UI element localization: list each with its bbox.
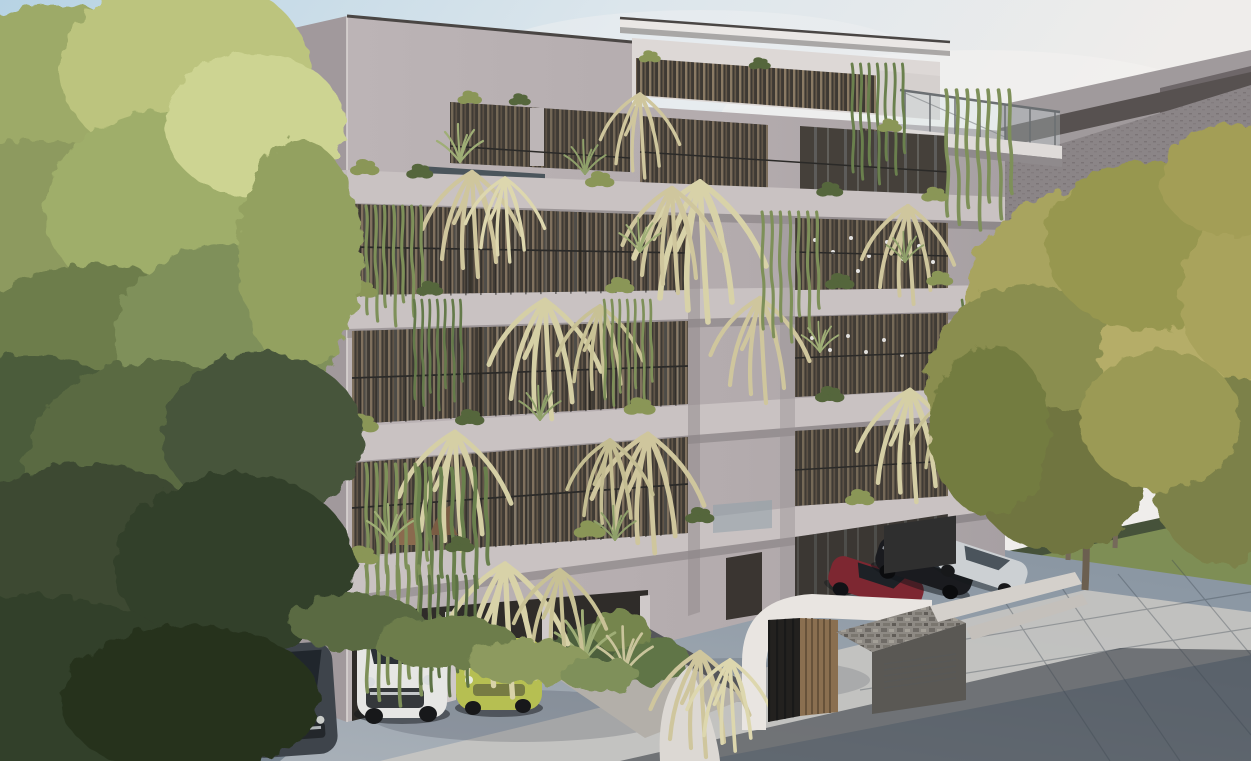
rendering-canvas xyxy=(0,0,1251,761)
grille xyxy=(473,684,525,696)
wheel xyxy=(365,708,383,724)
wheel xyxy=(515,699,531,713)
entry-door-recess xyxy=(726,552,762,620)
wheel xyxy=(419,706,437,722)
scene-svg xyxy=(0,0,1251,761)
garage-louver xyxy=(884,516,956,574)
loggia-pier xyxy=(530,108,544,166)
grille xyxy=(366,688,424,708)
wheel xyxy=(465,701,481,715)
gate-bars xyxy=(768,618,800,722)
balcony-floor xyxy=(713,500,772,533)
